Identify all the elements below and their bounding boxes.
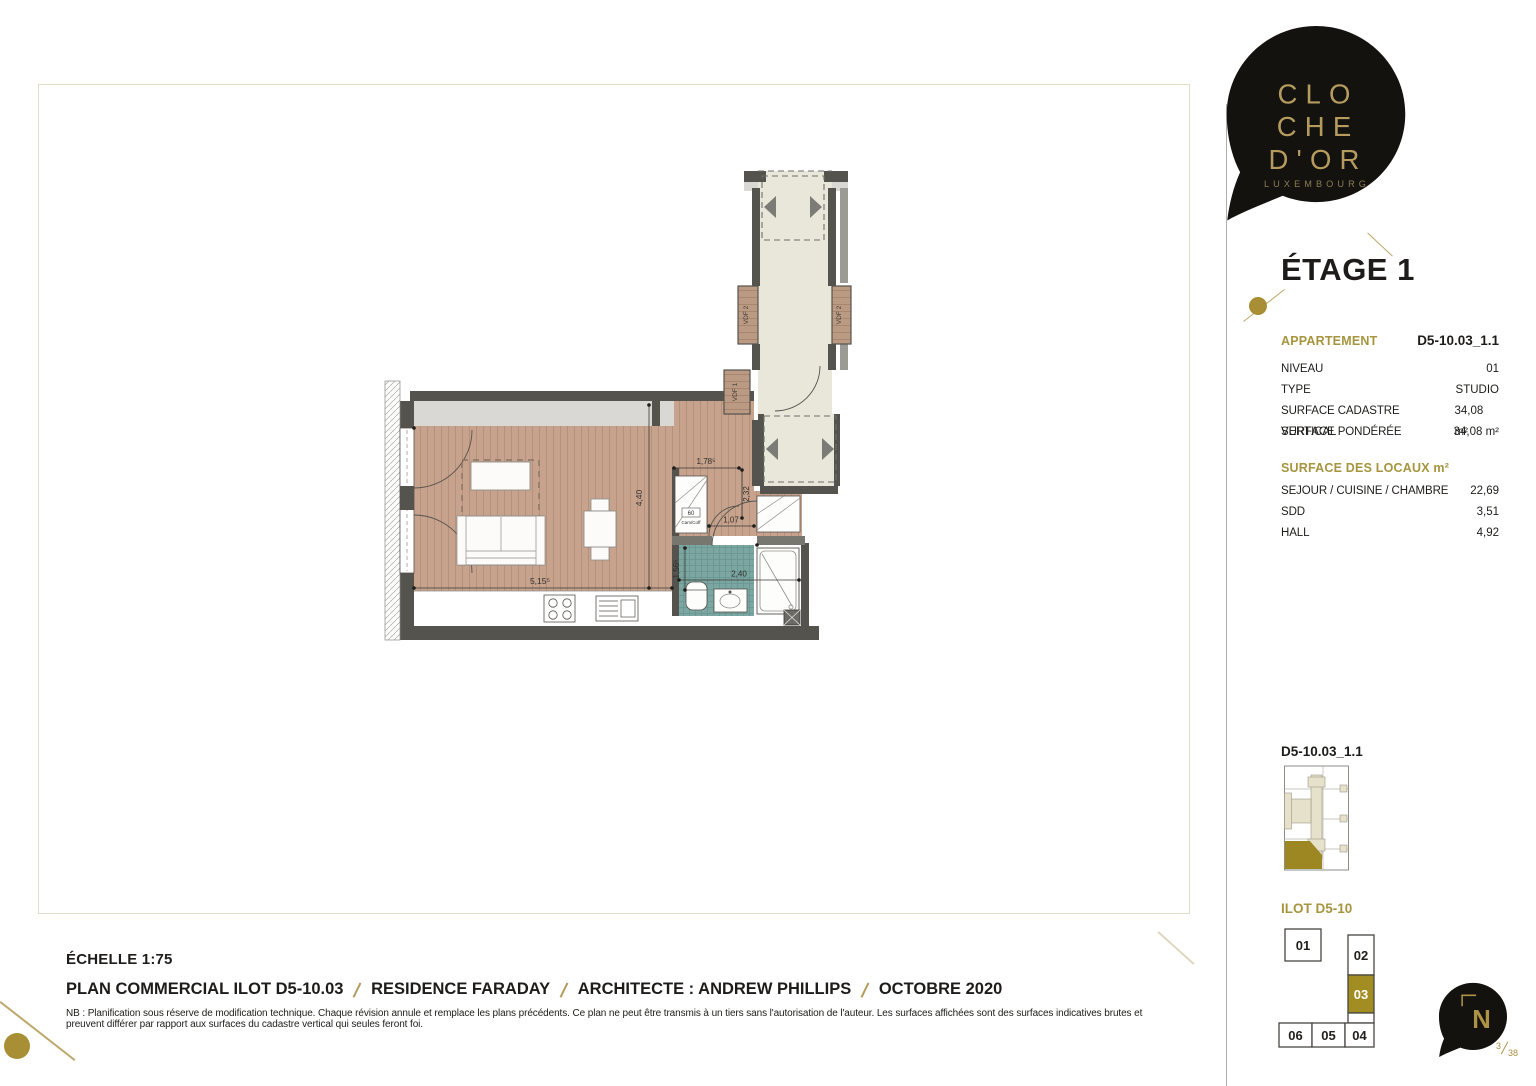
kitchen-cabinet: [596, 596, 638, 621]
dim-living-width: 5,15⁵: [530, 576, 550, 586]
mini-plan-title: D5-10.03_1.1: [1281, 744, 1363, 759]
gold-dot-decoration: [4, 1033, 30, 1059]
vdf1-label: VDF 1: [732, 382, 739, 401]
dim-sdd-width: 2,40: [731, 570, 747, 579]
page-number: 3 38: [1496, 1041, 1518, 1058]
vdf2-left-label: VDF 2: [743, 305, 750, 324]
separator-slash: [353, 982, 361, 997]
cloche-dor-logo: CLO CHE D'OR LUXEMBOURG: [1224, 24, 1408, 228]
stove: [544, 595, 575, 622]
table-row: NIVEAU 01: [1281, 359, 1499, 380]
ilot-unit-02: 02: [1354, 948, 1368, 963]
residence-name: RESIDENCE FARADAY: [371, 980, 550, 999]
technical-shaft: [784, 610, 800, 625]
north-letter: N: [1472, 1006, 1491, 1034]
page-number-denominator: 38: [1508, 1048, 1518, 1058]
coffee-table: [471, 462, 530, 490]
scale-label: ÉCHELLE 1:75: [66, 951, 173, 968]
table-row: HALL 4,92: [1281, 523, 1499, 544]
ilot-unit-03: 03: [1354, 987, 1368, 1002]
table-row: TYPE STUDIO: [1281, 380, 1499, 401]
ilot-diagram: 01 02 03 06 05 04: [1277, 925, 1381, 1053]
gold-dot-decoration: [1249, 297, 1267, 315]
table-row: SURFACE CADASTRE VERTICAL 34,08 m²: [1281, 401, 1499, 422]
ilot-unit-05: 05: [1321, 1028, 1335, 1043]
page-number-numerator: 3: [1496, 1041, 1501, 1051]
living-room-floor: [414, 426, 674, 591]
table-row: SURFACE PONDÉRÉE 34,08 m²: [1281, 422, 1499, 443]
disclaimer-text: NB : Planification sous réserve de modif…: [66, 1008, 1166, 1030]
logo-line-2: CHE: [1277, 111, 1360, 142]
surfaces-section-title: SURFACE DES LOCAUX m²: [1281, 461, 1499, 475]
architect-name: ARCHITECTE : ANDREW PHILLIPS: [578, 980, 851, 999]
page-title: ÉTAGE 1: [1281, 252, 1415, 288]
plan-commercial-page: VDF 2 VDF 2 VDF 1: [0, 0, 1536, 1086]
apartment-id: D5-10.03_1.1: [1417, 333, 1499, 348]
toilet: [686, 582, 707, 610]
ilot-unit-04: 04: [1352, 1028, 1367, 1043]
sofa: [457, 516, 545, 565]
logo-line-1: CLO: [1277, 79, 1358, 110]
mini-plan-diagram: [1283, 763, 1353, 877]
closet-code-label: 60: [688, 511, 695, 517]
apartment-section-label: APPARTEMENT: [1281, 334, 1377, 348]
dim-hall-height: 2,32: [742, 486, 751, 502]
frame-corner-line: [1157, 931, 1194, 965]
separator-slash: [560, 982, 568, 997]
plan-title-line: PLAN COMMERCIAL ILOT D5-10.03 RESIDENCE …: [66, 980, 1002, 999]
shower: [757, 548, 799, 614]
dim-living-height: 4,40: [634, 489, 644, 506]
closet-camcoff-label: Cam/Coff: [682, 520, 702, 525]
apartment-info-panel: APPARTEMENT D5-10.03_1.1 NIVEAU 01 TYPE …: [1281, 333, 1499, 443]
logo-line-3: D'OR: [1269, 144, 1368, 175]
table-row: SEJOUR / CUISINE / CHAMBRE 22,69: [1281, 481, 1499, 502]
ilot-section-title: ILOT D5-10: [1281, 901, 1352, 916]
dim-closet-width: 1,07: [723, 516, 739, 525]
vdf2-right-label: VDF 2: [836, 305, 843, 324]
ilot-unit-01: 01: [1296, 938, 1310, 953]
sidebar-divider: [1226, 104, 1227, 1086]
dim-hall-width: 1,78⁵: [697, 457, 716, 466]
surfaces-panel: SURFACE DES LOCAUX m² SEJOUR / CUISINE /…: [1281, 461, 1499, 544]
logo-subtitle: LUXEMBOURG: [1264, 179, 1370, 189]
table-row: SDD 3,51: [1281, 502, 1499, 523]
plan-title: PLAN COMMERCIAL ILOT D5-10.03: [66, 980, 343, 999]
dim-sdd-height: 1,56⁵: [672, 560, 681, 579]
plan-date: OCTOBRE 2020: [879, 980, 1003, 999]
ilot-unit-06: 06: [1288, 1028, 1302, 1043]
separator-slash: [861, 982, 869, 997]
floorplan-drawing: VDF 2 VDF 2 VDF 1: [372, 158, 862, 658]
